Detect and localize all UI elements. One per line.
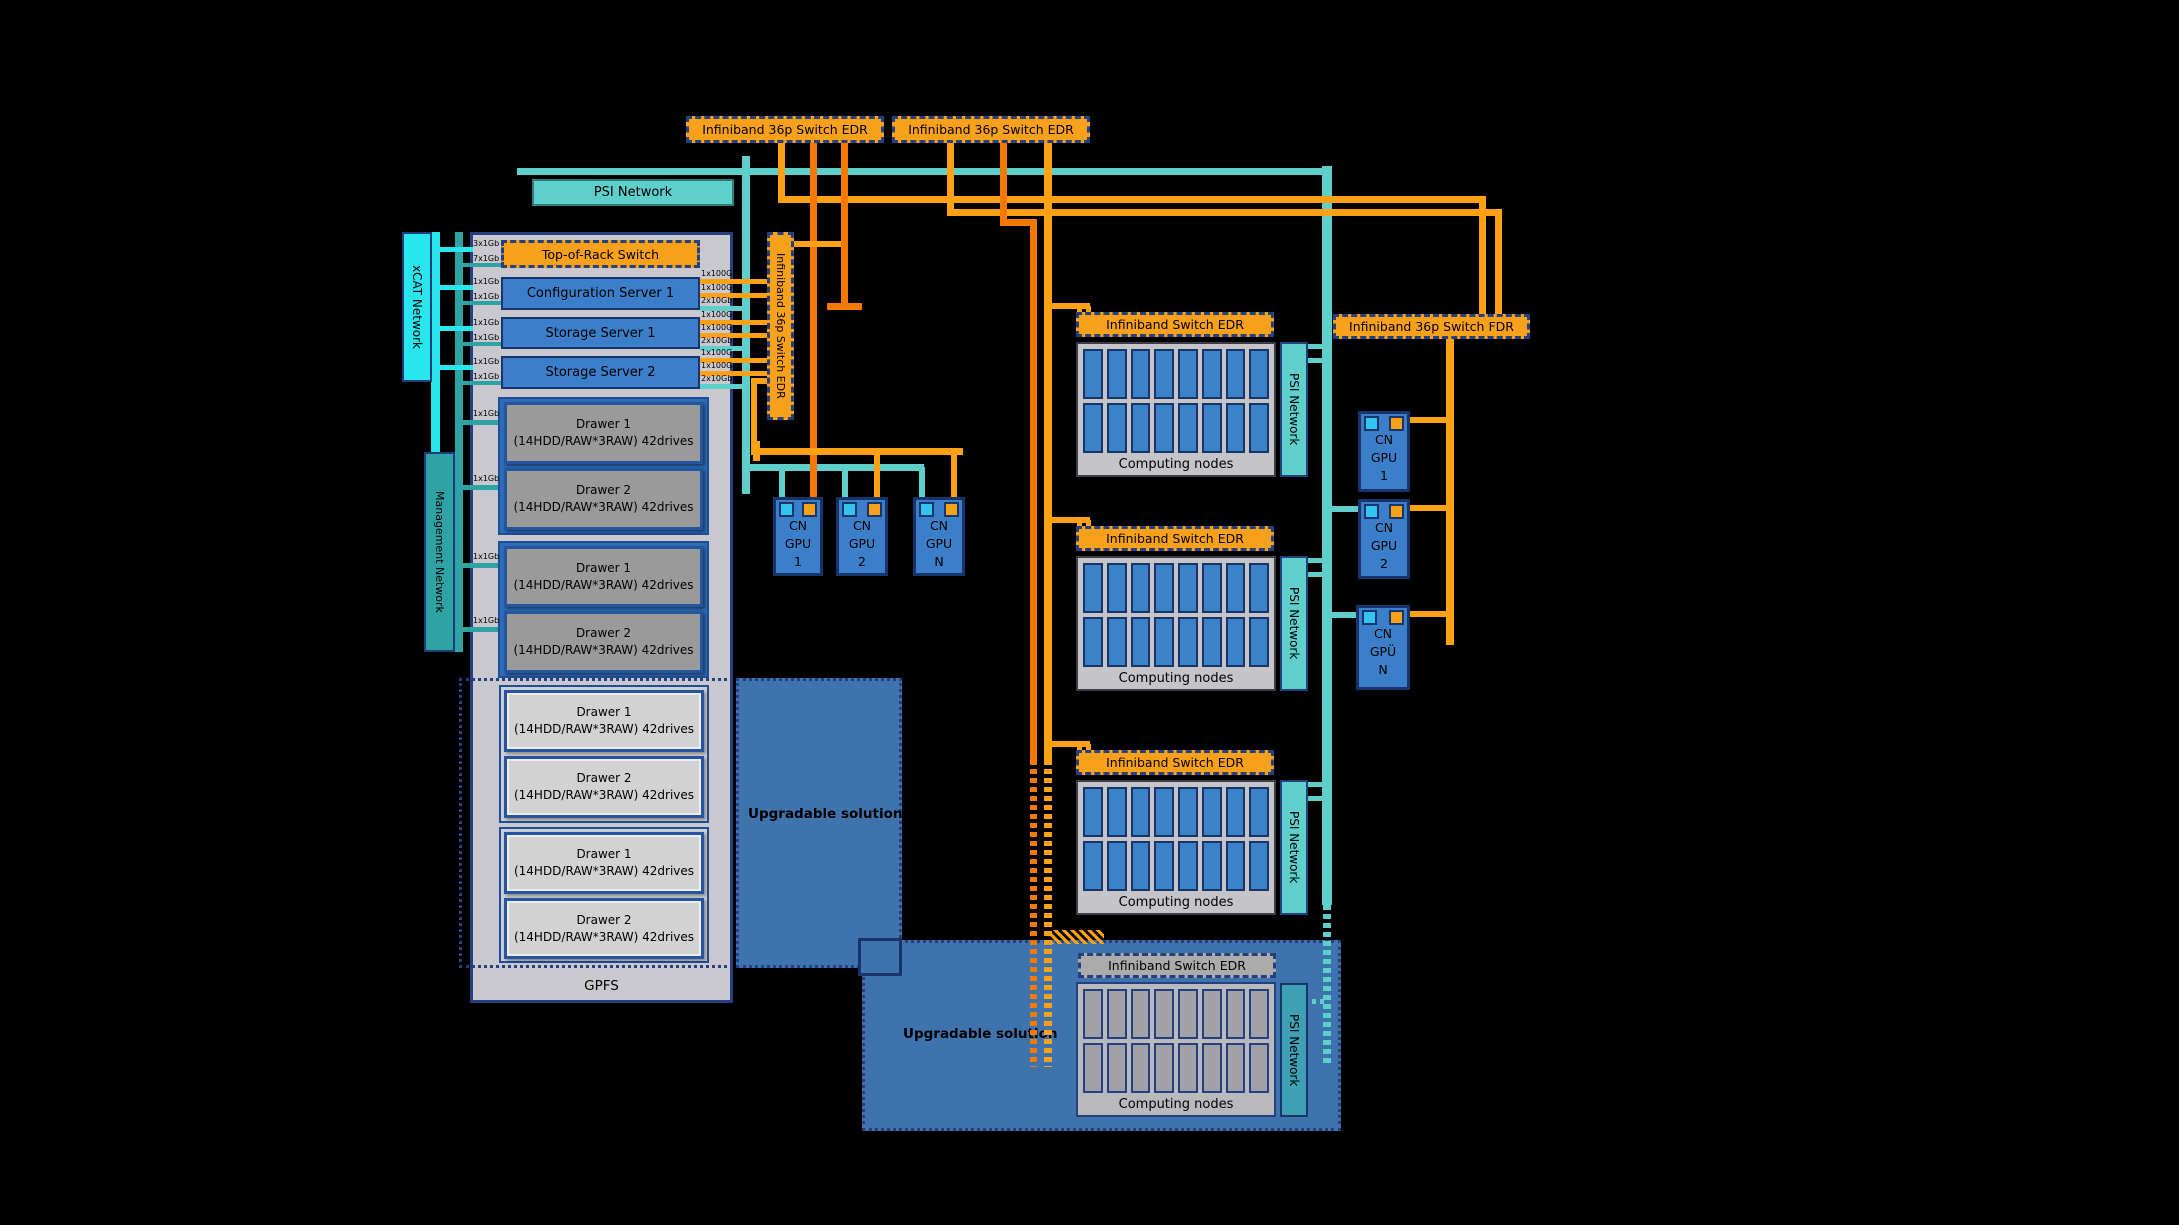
compute-node-cell [1249,787,1269,837]
bottom-psi-label: PSI Network [1287,1014,1301,1086]
group1-psi-network: PSI Network [1280,342,1308,477]
drawer-6: Drawer 2 (14HDD/RAW*3RAW) 42drives [504,756,704,818]
group1-node-grid [1083,349,1269,453]
cn-gpu-right-n-ib-port [1389,610,1404,625]
ib-vertical-top-stub [794,241,841,247]
xcat-network-box: xCAT Network [402,232,432,382]
cn-gpu-2-line3: 2 [839,553,885,571]
compute-node-cell [1249,349,1269,399]
cn-gpu-right-2-ib-port [1389,504,1404,519]
compute-node-cell [1107,787,1127,837]
gpun-orange-drop [951,448,957,499]
compute-node-cell [1178,403,1198,453]
compute-node-cell [1202,403,1222,453]
drawer-link-label-2: 1x1Gb [473,474,499,484]
gpfs-label: GPFS [470,972,733,1000]
edr-horizontal-1 [778,196,1486,203]
compute-node-cell [1107,563,1127,613]
compute-node-cell [1178,1043,1198,1093]
group1-ib-switch: Infiniband Switch EDR [1076,312,1274,337]
drawer-7-title: Drawer 1 [576,846,631,863]
link-label-right-9: 2x10Gb [701,374,732,384]
compute-node-cell [1226,989,1246,1039]
upgradable-solution-left-box [736,678,902,968]
compute-node-cell [1249,617,1269,667]
cn-gpu-1: CN GPU 1 [773,497,823,576]
compute-node-cell [1131,989,1151,1039]
compute-node-cell [1202,787,1222,837]
cn-gpu-1-line1: CN [776,517,820,535]
compute-node-cell [1154,403,1174,453]
cn-gpu-right-2-line3: 2 [1361,555,1407,573]
node-trunk-2-dashed [1044,760,1052,1067]
group2-node-grid [1083,563,1269,667]
compute-node-cell [1226,563,1246,613]
compute-node-cell [1202,617,1222,667]
compute-node-cell [1178,563,1198,613]
cn-gpu-right-1-line1: CN [1361,431,1407,449]
rgpun-teal-stub [1332,612,1359,618]
cn-gpu-1-psi-port [779,502,794,517]
psi-right-trunk-line [1322,166,1332,905]
drawer-2-title: Drawer 2 [576,482,631,499]
drawer-3-title: Drawer 1 [576,560,631,577]
compute-node-cell [1154,989,1174,1039]
cn-gpu-right-2-psi-port [1364,504,1379,519]
compute-node-cell [1202,563,1222,613]
group1-psi-label: PSI Network [1287,373,1301,445]
drawer-link-label-3: 1x1Gb [473,552,499,562]
compute-node-cell [1249,403,1269,453]
sw1-drop-c [841,143,848,310]
compute-node-cell [1202,349,1222,399]
upgradable-solution-left-label: Upgradable solution [748,806,903,822]
compute-node-cell [1202,989,1222,1039]
link-label-left-1: 3x1Gb [473,239,499,249]
compute-node-cell [1249,563,1269,613]
cn-gpu-2-psi-port [842,502,857,517]
psi-center-vertical-line [742,156,750,494]
bottom-orange-hatch [1050,930,1104,944]
group1-nodes-label: Computing nodes [1078,457,1274,472]
compute-node-cell [1226,403,1246,453]
rgpu2-teal-stub [1332,506,1361,512]
compute-node-cell [1107,349,1127,399]
node-trunk-1-dashed [1030,760,1037,1067]
drawer4-link-line [455,627,503,632]
compute-node-cell [1154,841,1174,891]
bottom-ib-switch: Infiniband Switch EDR [1078,953,1276,978]
ib-36p-switch-vertical-label: Infiniband 36p Switch EDR [774,253,787,399]
compute-node-cell [1249,1043,1269,1093]
cn-gpu-n-ib-port [944,502,959,517]
group2-psi-network: PSI Network [1280,556,1308,691]
compute-node-cell [1202,1043,1222,1093]
cn-gpu-1-line3: 1 [776,553,820,571]
drawer3-link-line [455,563,503,568]
cn-gpu-2-line1: CN [839,517,885,535]
top-ib-switch-2: Infiniband 36p Switch EDR [892,116,1090,143]
group2-psi-link-label: 10 [1311,562,1320,570]
drawer-link-label-1: 1x1Gb [473,409,499,419]
compute-node-cell [1226,617,1246,667]
link-label-right-4: 1x100G [701,310,732,320]
sw1-drop-c-endbar [827,303,862,310]
cn-gpu-2-ib-port [867,502,882,517]
gpu-bus-junction [753,441,760,461]
drawer-2: Drawer 2 (14HDD/RAW*3RAW) 42drives [504,468,703,530]
compute-node-cell [1154,1043,1174,1093]
cn-gpu-n-line3: N [916,553,962,571]
cn-gpu-right-n-line2: GPÜ [1359,643,1407,661]
cn-gpu-1-ib-port [802,502,817,517]
xcat-stub-row7 [440,365,473,370]
psi-network-bar-label: PSI Network [594,185,672,200]
link-label-right-2: 1x100G [701,283,732,293]
compute-node-cell [1083,841,1103,891]
compute-node-cell [1107,617,1127,667]
cn-gpu-right-n-line3: N [1359,661,1407,679]
gpu2-teal-stub [842,467,848,499]
gpfs-label-text: GPFS [584,978,619,994]
cn-gpu-right-1: CN GPU 1 [1358,411,1410,492]
compute-node-cell [1083,1043,1103,1093]
link-label-right-1: 1x100G [701,269,732,279]
storage-server-2-label: Storage Server 2 [545,365,655,380]
compute-node-cell [1107,403,1127,453]
fdr-out-vertical [1446,339,1454,645]
cn-gpu-right-2-line1: CN [1361,519,1407,537]
compute-node-cell [1178,617,1198,667]
configuration-server-1-label: Configuration Server 1 [527,286,674,301]
drawer-8-sub: (14HDD/RAW*3RAW) 42drives [514,929,694,946]
compute-node-cell [1226,787,1246,837]
compute-node-cell [1154,617,1174,667]
compute-node-cell [1083,403,1103,453]
cn-gpu-n-psi-port [919,502,934,517]
fdr-feed-2 [1495,209,1502,314]
compute-node-cell [1131,1043,1151,1093]
top-ib-switch-1: Infiniband 36p Switch EDR [686,116,884,143]
gpun-teal-stub [919,467,925,499]
group3-ib-switch-label: Infiniband Switch EDR [1106,755,1244,770]
storage-server-1: Storage Server 1 [501,317,700,349]
compute-node-cell [1202,841,1222,891]
link-label-left-6: 1x1Gb [473,333,499,343]
fdr-switch: Infiniband 36p Switch FDR [1333,314,1530,339]
group3-psi-label: PSI Network [1287,811,1301,883]
compute-node-cell [1083,617,1103,667]
drawer-1: Drawer 1 (14HDD/RAW*3RAW) 42drives [504,402,703,464]
management-network-label: Management Network [433,491,446,613]
compute-node-cell [1131,403,1151,453]
cn-gpu-right-1-line2: GPU [1361,449,1407,467]
xcat-network-label: xCAT Network [410,265,424,349]
sw1-drop-a [778,143,785,200]
group3-nodes-label: Computing nodes [1078,895,1274,910]
drawer-6-sub: (14HDD/RAW*3RAW) 42drives [514,787,694,804]
gpu1-teal-stub [779,467,785,499]
drawer-3-sub: (14HDD/RAW*3RAW) 42drives [513,577,693,594]
drawer-1-title: Drawer 1 [576,416,631,433]
compute-node-cell [1154,563,1174,613]
link-label-left-2: 7x1Gb [473,254,499,264]
compute-node-cell [1226,1043,1246,1093]
storage-server-2: Storage Server 2 [501,356,700,389]
edr-horizontal-2 [947,209,1502,216]
group1-nodes-panel: Computing nodes [1076,342,1276,477]
drawer-8: Drawer 2 (14HDD/RAW*3RAW) 42drives [504,898,704,959]
cn-gpu-2-line2: GPU [839,535,885,553]
management-network-box: Management Network [424,452,455,652]
group3-node-grid [1083,787,1269,891]
psi-top-trunk-line [517,168,1332,175]
cn-gpu-right-2: CN GPU 2 [1358,499,1410,579]
compute-node-cell [1178,989,1198,1039]
cn-gpu-2: CN GPU 2 [836,497,888,576]
compute-node-cell [1131,617,1151,667]
compute-node-cell [1083,989,1103,1039]
drawer-4: Drawer 2 (14HDD/RAW*3RAW) 42drives [504,611,703,673]
fdr-switch-label: Infiniband 36p Switch FDR [1349,319,1514,334]
bottom-ib-switch-label: Infiniband Switch EDR [1108,958,1246,973]
node-trunk-1 [1030,219,1037,760]
group2-ib-switch: Infiniband Switch EDR [1076,526,1274,551]
rgpu2-orange-stub [1410,505,1446,511]
link-label-right-8: 1x100G [701,361,732,371]
cn-gpu-right-1-ib-port [1389,416,1404,431]
group2-branch [1044,517,1090,523]
psi2-link-stub-b [1308,572,1324,577]
sw2-drop-a [947,143,954,212]
compute-node-cell [1131,563,1151,613]
compute-node-cell [1131,841,1151,891]
compute-node-cell [1178,787,1198,837]
gpu2-orange-drop [874,448,880,499]
cn-gpu-n-line1: CN [916,517,962,535]
cn-gpu-right-1-psi-port [1364,416,1379,431]
compute-node-cell [1107,841,1127,891]
drawer-7-sub: (14HDD/RAW*3RAW) 42drives [514,863,694,880]
link-label-right-6: 2x10Gb [701,336,732,346]
sw1-drop-b-gpu1 [810,143,817,499]
psi-right-trunk-dashed [1323,905,1331,1067]
group2-ib-switch-label: Infiniband Switch EDR [1106,531,1244,546]
top-of-rack-switch: Top-of-Rack Switch [501,240,700,268]
cn-gpu-1-line2: GPU [776,535,820,553]
compute-node-cell [1083,563,1103,613]
link-label-left-5: 1x1Gb [473,318,499,328]
drawer-3: Drawer 1 (14HDD/RAW*3RAW) 42drives [504,546,703,607]
xcat-stub-row3 [440,285,473,290]
psi3-link-stub-b [1308,796,1324,801]
gpu-orange-bus [751,448,963,455]
xcat-stub-row1 [440,247,473,252]
link-label-left-3: 1x1Gb [473,277,499,287]
compute-node-cell [1226,841,1246,891]
cn-gpu-right-n-psi-port [1362,610,1377,625]
group3-ib-switch: Infiniband Switch EDR [1076,750,1274,775]
top-ib-switch-2-label: Infiniband 36p Switch EDR [908,122,1074,137]
bottom-node-grid [1083,989,1269,1093]
group3-nodes-panel: Computing nodes [1076,780,1276,915]
rgpu1-orange-stub [1410,417,1446,423]
drawer-5: Drawer 1 (14HDD/RAW*3RAW) 42drives [504,690,704,752]
group1-branch [1044,303,1090,309]
group3-psi-link-label: 10 [1311,786,1320,794]
drawer-8-title: Drawer 2 [576,912,631,929]
compute-node-cell [1107,1043,1127,1093]
drawer-5-title: Drawer 1 [576,704,631,721]
cn-gpu-right-1-line3: 1 [1361,467,1407,485]
cn-gpu-right-2-line2: GPU [1361,537,1407,555]
bottom-nodes-label: Computing nodes [1078,1097,1274,1112]
drawer1-link-line [455,420,503,425]
drawer-4-title: Drawer 2 [576,625,631,642]
compute-node-cell [1178,349,1198,399]
group1-ib-switch-label: Infiniband Switch EDR [1106,317,1244,332]
drawer-5-sub: (14HDD/RAW*3RAW) 42drives [514,721,694,738]
compute-node-cell [1249,989,1269,1039]
drawer2-link-line [455,485,503,490]
region-overlap-corner [858,938,902,976]
psi-network-bar: PSI Network [532,179,734,206]
compute-node-cell [1083,787,1103,837]
rgpun-orange-stub [1407,611,1446,617]
node-trunk-2 [1044,143,1052,760]
compute-node-cell [1131,787,1151,837]
link-label-right-5: 1x100G [701,323,732,333]
drawer-2-sub: (14HDD/RAW*3RAW) 42drives [513,499,693,516]
drawer-link-label-4: 1x1Gb [473,616,499,626]
diagram-canvas: Upgradable solution Upgradable solution [0,0,2179,1225]
drawer-4-sub: (14HDD/RAW*3RAW) 42drives [513,642,693,659]
top-of-rack-switch-label: Top-of-Rack Switch [542,247,659,262]
storage2-2x10gb-line [700,384,744,389]
link-label-left-7: 1x1Gb [473,357,499,367]
compute-node-cell [1131,349,1151,399]
top-ib-switch-1-label: Infiniband 36p Switch EDR [702,122,868,137]
sw2-drop-b [1000,143,1007,225]
group1-psi-link-label: 10 [1311,348,1320,356]
group2-psi-label: PSI Network [1287,587,1301,659]
link-label-right-3: 2x10Gb [701,296,732,306]
compute-node-cell [1083,349,1103,399]
link-label-left-8: 1x1Gb [473,372,499,382]
ib-36p-switch-vertical: Infiniband 36p Switch EDR [767,232,794,420]
cn-gpu-n: CN GPU N [913,497,965,576]
compute-node-cell [1154,349,1174,399]
xcat-stub-row5 [440,326,473,331]
group2-nodes-label: Computing nodes [1078,671,1274,686]
drawer-6-title: Drawer 2 [576,770,631,787]
bottom-nodes-panel: Computing nodes [1076,982,1276,1117]
xcat-vertical-line [431,232,440,454]
cn-gpu-right-n: CN GPÜ N [1356,605,1410,690]
compute-node-cell [1178,841,1198,891]
group3-psi-network: PSI Network [1280,780,1308,915]
compute-node-cell [1107,989,1127,1039]
link-label-left-4: 1x1Gb [473,292,499,302]
drawer-7: Drawer 1 (14HDD/RAW*3RAW) 42drives [504,832,704,894]
psi1-link-stub-b [1308,358,1324,363]
bottom-psi-network: PSI Network [1280,983,1308,1117]
management-vertical-line [455,232,463,652]
compute-node-cell [1154,787,1174,837]
gpu-center-teal-bus [742,464,924,471]
configuration-server-1: Configuration Server 1 [501,277,700,310]
cn-gpu-n-line2: GPU [916,535,962,553]
cn-gpu-right-n-line1: CN [1359,625,1407,643]
group3-branch [1044,741,1090,747]
storage-server-1-label: Storage Server 1 [545,326,655,341]
compute-node-cell [1226,349,1246,399]
compute-node-cell [1249,841,1269,891]
group2-nodes-panel: Computing nodes [1076,556,1276,691]
link-label-right-7: 1x100G [701,348,732,358]
drawer-1-sub: (14HDD/RAW*3RAW) 42drives [513,433,693,450]
